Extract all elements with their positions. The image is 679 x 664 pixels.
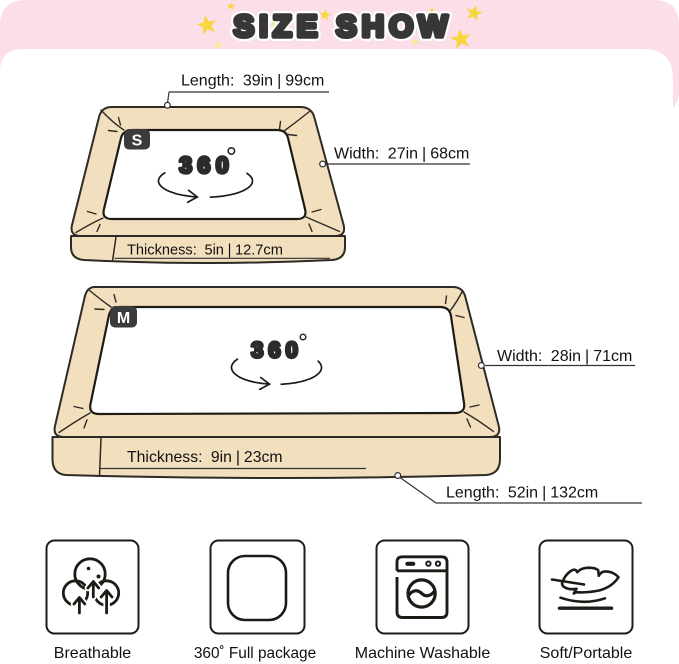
svg-text:360: 360 [179,152,234,178]
svg-text:360˚ Full package: 360˚ Full package [194,645,316,662]
svg-text:SIZE SHOW: SIZE SHOW [234,9,453,44]
svg-text:S: S [132,133,143,150]
svg-text:Width: 27in | 68cm: Width: 27in | 68cm [334,146,469,163]
svg-text:Length: 52in | 132cm: Length: 52in | 132cm [446,485,598,502]
svg-text:Thickness: 9in | 23cm: Thickness: 9in | 23cm [127,449,283,466]
svg-text:Breathable: Breathable [54,645,131,662]
svg-text:Soft/Portable: Soft/Portable [540,645,633,662]
svg-text:M: M [117,310,130,327]
svg-text:Width: 28in | 71cm: Width: 28in | 71cm [497,348,632,365]
svg-text:Length: 39in | 99cm: Length: 39in | 99cm [181,73,324,90]
svg-text:Machine Washable: Machine Washable [355,645,491,662]
svg-text:Thickness: 5in | 12.7cm: Thickness: 5in | 12.7cm [127,243,283,259]
svg-text:360: 360 [251,338,303,363]
